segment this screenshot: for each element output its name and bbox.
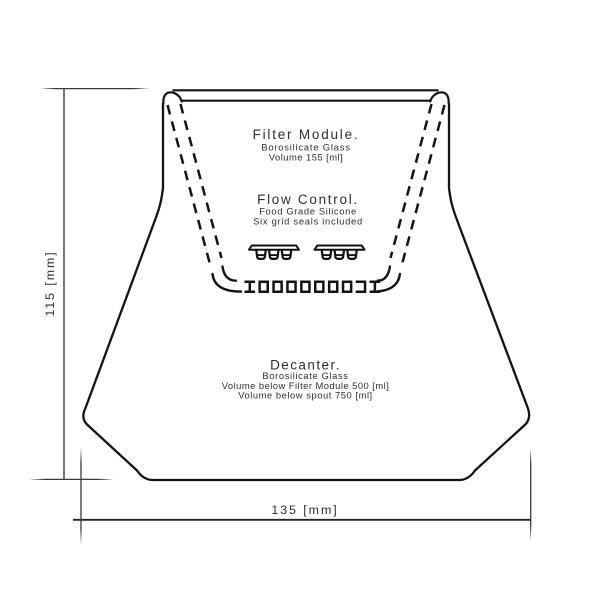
svg-text:Volume below spout 750 [ml]: Volume below spout 750 [ml] bbox=[238, 390, 372, 401]
svg-text:Volume 155 [ml]: Volume 155 [ml] bbox=[269, 151, 343, 162]
svg-text:115 [mm]: 115 [mm] bbox=[43, 250, 57, 316]
svg-text:Six grid seals included: Six grid seals included bbox=[253, 215, 363, 226]
svg-text:Filter Module.: Filter Module. bbox=[253, 127, 360, 142]
svg-text:135 [mm]: 135 [mm] bbox=[271, 503, 338, 517]
